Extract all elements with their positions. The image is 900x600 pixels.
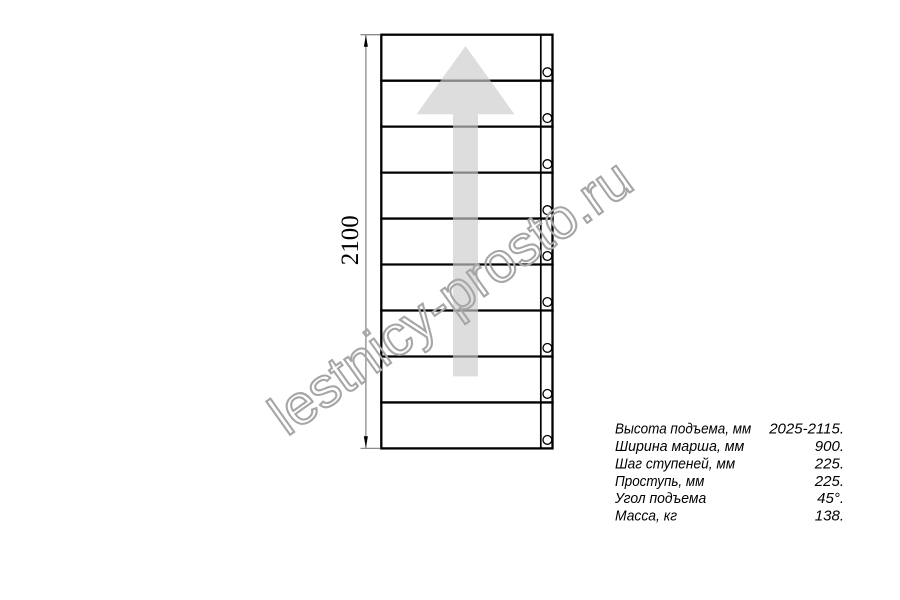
svg-text:2100: 2100 [337, 215, 364, 265]
svg-text:Высота подъема, мм: Высота подъема, мм [615, 421, 751, 438]
svg-text:225.: 225. [814, 455, 844, 472]
svg-text:Угол подъема: Угол подъема [614, 490, 706, 507]
svg-text:900.: 900. [815, 438, 844, 455]
svg-text:45°.: 45°. [817, 490, 844, 507]
svg-text:Проступь, мм: Проступь, мм [615, 473, 704, 490]
svg-text:Масса, кг: Масса, кг [615, 508, 678, 525]
svg-text:138.: 138. [815, 508, 844, 525]
svg-text:2025-2115.: 2025-2115. [768, 421, 844, 438]
svg-text:Шаг ступеней, мм: Шаг ступеней, мм [615, 455, 735, 472]
svg-text:225.: 225. [814, 473, 844, 490]
svg-text:Ширина марша, мм: Ширина марша, мм [615, 438, 744, 455]
